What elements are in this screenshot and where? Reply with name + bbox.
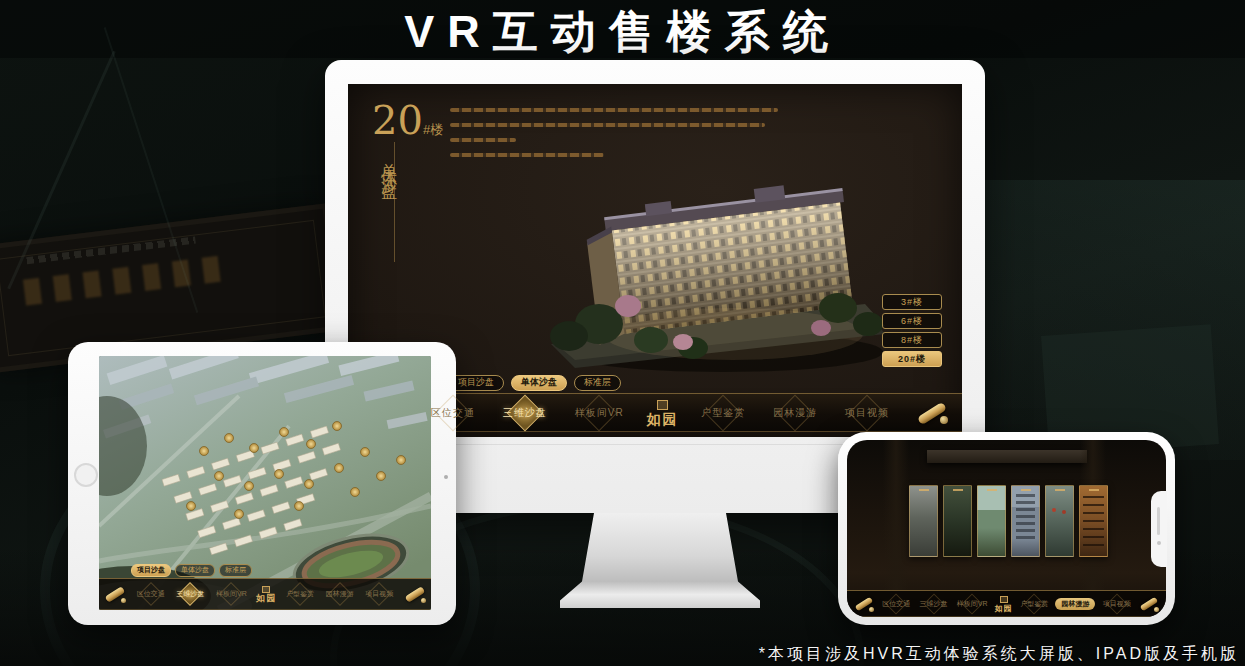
app-logo[interactable]: 如园 (995, 596, 1013, 612)
gallery-panel[interactable] (1011, 485, 1040, 557)
nav-item-model-room-vr[interactable]: 样板间VR (214, 588, 249, 600)
nav-item-location-traffic[interactable]: 区位交通 (135, 588, 167, 600)
logo-text: 如园 (646, 412, 678, 426)
nav-item-project-video[interactable]: 项目视频 (840, 404, 894, 422)
tab-single-sandtable[interactable]: 单体沙盘 (511, 375, 567, 391)
nav-item-model-room-vr[interactable]: 样板间VR (570, 404, 629, 422)
ipad-navbar: 区位交通 三维沙盘 样板间VR 如园 户型鉴赏 园林漫游 项目视频 (99, 578, 431, 610)
nav-item-3d-sandtable[interactable]: 三维沙盘 (174, 588, 206, 600)
logo-seal-icon (657, 400, 668, 410)
gallery-panel[interactable] (1045, 485, 1074, 557)
scene-gallery (909, 485, 1108, 557)
logo-seal-icon (1000, 596, 1008, 603)
nav-item-project-video[interactable]: 项目视频 (363, 588, 395, 600)
nav-item-unit-gallery[interactable]: 户型鉴赏 (284, 588, 316, 600)
logo-seal-icon (262, 586, 270, 593)
floor-button-20[interactable]: 20#楼 (882, 351, 942, 367)
ipad-tablet: 项目沙盘 单体沙盘 标准层 区位交通 三维沙盘 样板间VR 如园 户型鉴赏 园林… (68, 342, 456, 625)
ipad-home-button[interactable] (74, 463, 98, 487)
app-logo[interactable]: 如园 (256, 586, 276, 603)
tab-standard-floor[interactable]: 标准层 (574, 375, 621, 391)
app-logo[interactable]: 如园 (646, 400, 678, 426)
nav-item-garden-tour[interactable]: 园林漫游 (1055, 598, 1095, 610)
footnote: *本项目涉及HVR互动体验系统大屏版、IPAD版及手机版 (759, 644, 1239, 665)
tab-project-sandtable[interactable]: 项目沙盘 (448, 375, 504, 391)
ipad-view-tab-group: 项目沙盘 单体沙盘 标准层 (131, 564, 252, 577)
gallery-panel[interactable] (909, 485, 938, 557)
view-tab-group: 项目沙盘 单体沙盘 标准层 (448, 375, 621, 391)
gallery-panel[interactable] (1079, 485, 1108, 557)
logo-text: 如园 (256, 594, 276, 603)
nav-item-unit-gallery[interactable]: 户型鉴赏 (696, 404, 750, 422)
nav-item-3d-sandtable[interactable]: 三维沙盘 (498, 404, 552, 422)
ipad-camera (444, 475, 448, 479)
nav-item-location-traffic[interactable]: 区位交通 (426, 404, 480, 422)
gallery-panel[interactable] (943, 485, 972, 557)
ipad-screen: 项目沙盘 单体沙盘 标准层 区位交通 三维沙盘 样板间VR 如园 户型鉴赏 园林… (99, 356, 431, 610)
nav-item-3d-sandtable[interactable]: 三维沙盘 (918, 598, 950, 610)
tab-single-sandtable[interactable]: 单体沙盘 (175, 564, 215, 577)
scroll-icon-right[interactable] (1138, 594, 1160, 614)
tab-project-sandtable[interactable]: 项目沙盘 (131, 564, 171, 577)
interior-beam-decoration (927, 450, 1087, 463)
heading-vertical-label: 单体沙盘 (378, 150, 399, 270)
building-heading: 20#楼 单体沙盘 (372, 100, 443, 270)
phone-speaker (1157, 507, 1160, 535)
nav-item-unit-gallery[interactable]: 户型鉴赏 (1018, 598, 1050, 610)
floor-button-8[interactable]: 8#楼 (882, 332, 942, 348)
logo-text: 如园 (995, 604, 1013, 612)
building-3d-model[interactable] (533, 156, 893, 381)
nav-item-model-room-vr[interactable]: 样板间VR (955, 598, 990, 610)
heading-divider (394, 142, 395, 262)
nav-item-garden-tour[interactable]: 园林漫游 (768, 404, 822, 422)
nav-item-garden-tour[interactable]: 园林漫游 (324, 588, 356, 600)
nav-item-project-video[interactable]: 项目视频 (1101, 598, 1133, 610)
tab-standard-floor[interactable]: 标准层 (219, 564, 252, 577)
page-title: VR互动售楼系统 (0, 2, 1245, 62)
nav-item-location-traffic[interactable]: 区位交通 (880, 598, 912, 610)
building-number-suffix: #楼 (423, 122, 443, 137)
phone-screen: 区位交通 三维沙盘 样板间VR 如园 户型鉴赏 园林漫游 项目视频 (847, 440, 1166, 617)
scroll-icon-right[interactable] (403, 583, 427, 605)
smartphone: 区位交通 三维沙盘 样板间VR 如园 户型鉴赏 园林漫游 项目视频 (838, 432, 1175, 625)
phone-camera (1157, 541, 1161, 545)
scroll-icon-left[interactable] (853, 594, 875, 614)
floor-button-6[interactable]: 6#楼 (882, 313, 942, 329)
phone-navbar: 区位交通 三维沙盘 样板间VR 如园 户型鉴赏 园林漫游 项目视频 (847, 590, 1166, 617)
building-number: 20 (372, 97, 423, 143)
building-model-illustration (533, 156, 893, 381)
floor-button-group: 3#楼 6#楼 8#楼 20#楼 (882, 294, 942, 367)
floor-button-3[interactable]: 3#楼 (882, 294, 942, 310)
phone-notch (1151, 491, 1167, 567)
scroll-icon[interactable] (912, 399, 950, 427)
scroll-icon-left[interactable] (103, 583, 127, 605)
gallery-panel[interactable] (977, 485, 1006, 557)
